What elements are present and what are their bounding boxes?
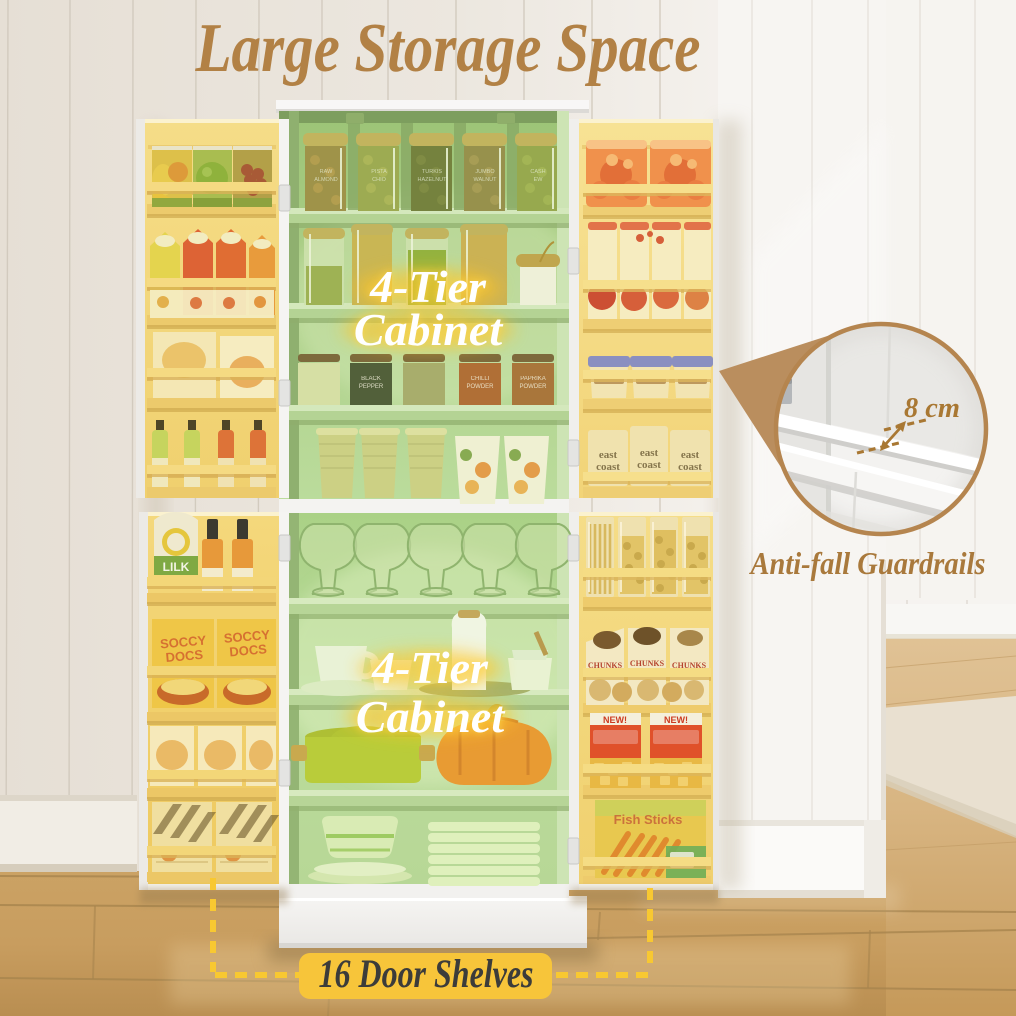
svg-text:Large Storage Space: Large Storage Space xyxy=(195,10,701,87)
svg-text:4-Tier: 4-Tier xyxy=(371,642,489,693)
svg-text:LILK: LILK xyxy=(163,560,190,574)
svg-text:east: east xyxy=(599,449,618,461)
svg-text:8 cm: 8 cm xyxy=(904,393,960,424)
svg-text:Cabinet: Cabinet xyxy=(354,304,503,355)
svg-text:CHILLI: CHILLI xyxy=(471,376,490,382)
svg-text:RAW: RAW xyxy=(320,169,333,175)
svg-text:JUMBO: JUMBO xyxy=(475,169,495,175)
svg-text:NEW!: NEW! xyxy=(664,715,688,725)
svg-text:PAPRIKA: PAPRIKA xyxy=(520,376,546,382)
svg-text:CHUNKS: CHUNKS xyxy=(630,659,665,668)
svg-text:Cabinet: Cabinet xyxy=(356,691,505,742)
svg-text:PISTA: PISTA xyxy=(371,169,387,175)
svg-text:ALMOND: ALMOND xyxy=(314,177,338,183)
svg-text:coast: coast xyxy=(637,459,661,471)
svg-text:BLACK: BLACK xyxy=(361,376,381,382)
svg-text:east: east xyxy=(640,447,659,459)
svg-text:TURKIS: TURKIS xyxy=(422,169,443,175)
svg-text:Anti-fall Guardrails: Anti-fall Guardrails xyxy=(749,545,986,581)
svg-text:Fish Sticks: Fish Sticks xyxy=(614,812,683,827)
svg-text:NEW!: NEW! xyxy=(603,715,627,725)
svg-text:16 Door Shelves: 16 Door Shelves xyxy=(319,951,534,996)
svg-text:CASH: CASH xyxy=(530,169,545,175)
svg-text:coast: coast xyxy=(596,461,620,473)
svg-text:coast: coast xyxy=(678,461,702,473)
svg-text:EW: EW xyxy=(534,177,544,183)
svg-text:POWDER: POWDER xyxy=(467,384,495,390)
svg-text:WALNUT: WALNUT xyxy=(473,177,497,183)
svg-text:POWDER: POWDER xyxy=(520,384,548,390)
svg-text:PEPPER: PEPPER xyxy=(359,384,384,390)
svg-text:CHIO: CHIO xyxy=(372,177,386,183)
svg-text:east: east xyxy=(681,449,700,461)
svg-text:HAZELNUT: HAZELNUT xyxy=(417,177,447,183)
